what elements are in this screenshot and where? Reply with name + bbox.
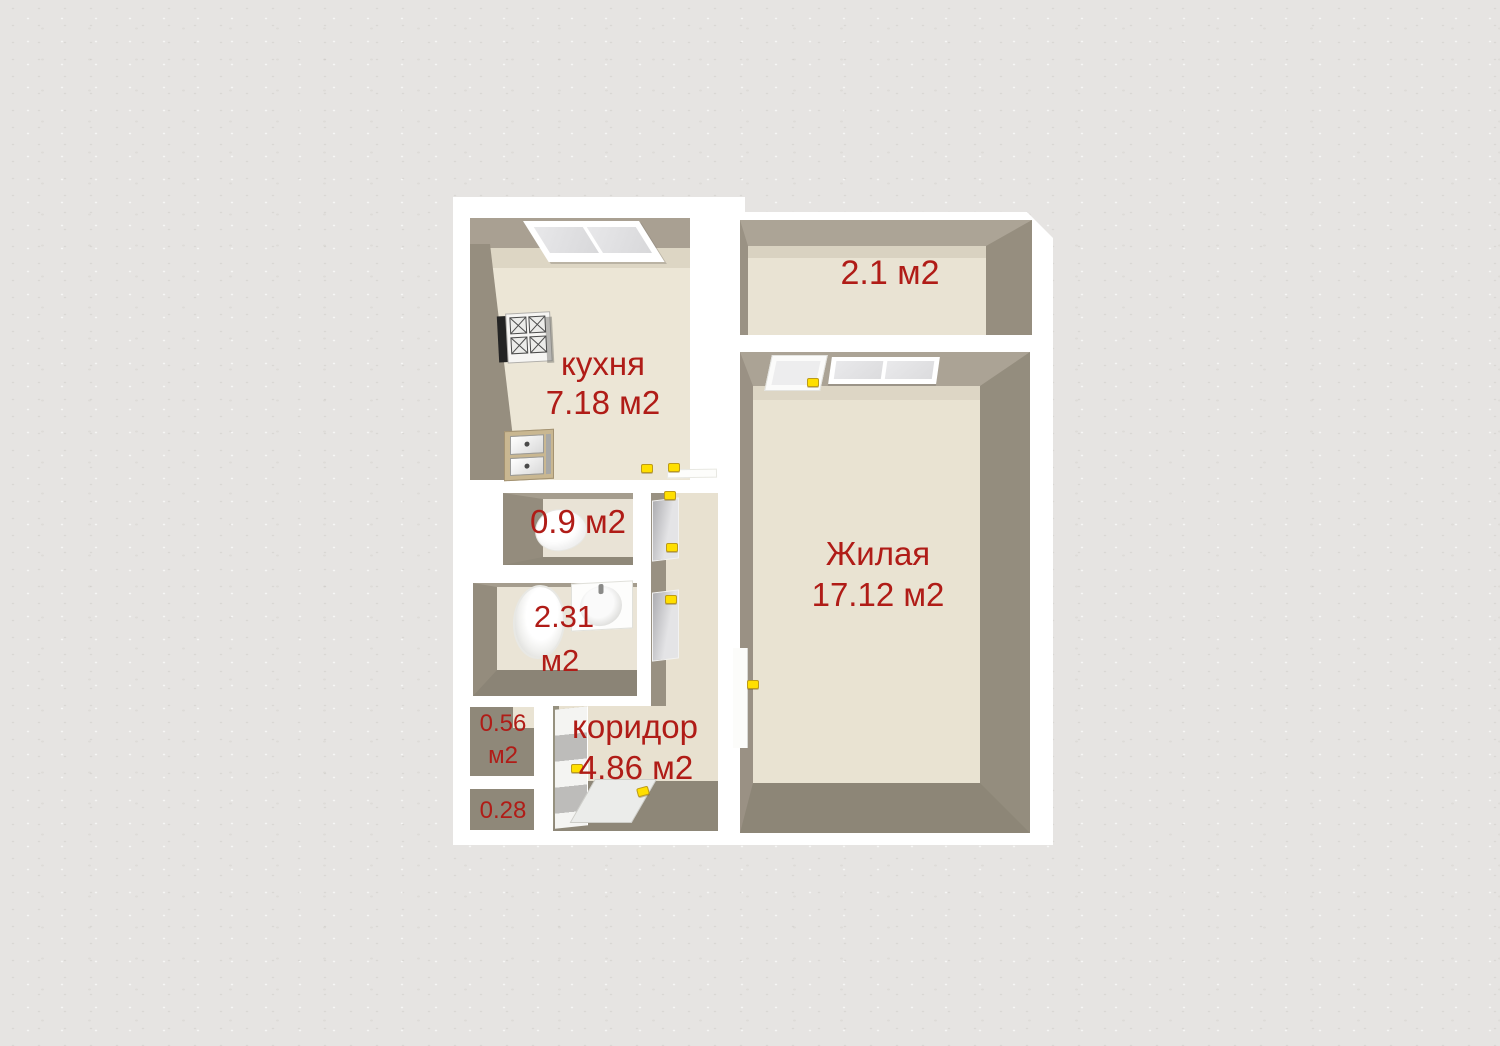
toilet-area-label: 0.9 м2	[497, 505, 659, 540]
kitchen-window-panes	[534, 227, 652, 253]
kitchen-area-label: 7.18 м2	[513, 386, 693, 421]
floor-plan: кухня 7.18 м2 2.1 м2 Жилая 17.12 м2 0.9 …	[0, 0, 1500, 1046]
kitchen-sink-icon	[504, 429, 554, 482]
living-room-window-icon	[828, 357, 940, 384]
living-room-area-label: 17.12 м2	[780, 578, 976, 613]
balcony-area-label: 2.1 м2	[800, 256, 980, 292]
sink-drawer	[510, 434, 544, 454]
bathroom-area-value-label: 2.31	[508, 601, 620, 634]
living-room-door-icon	[733, 648, 748, 748]
living-room-window-panes	[834, 361, 935, 379]
door-handle-icon	[641, 464, 653, 473]
kitchen-name-label: кухня	[523, 347, 683, 382]
corridor-name-label: коридор	[556, 710, 714, 745]
door-handle-icon	[668, 463, 680, 472]
corridor-area-label: 4.86 м2	[556, 751, 716, 786]
kitchen-window-icon	[523, 221, 665, 262]
storage-upper-area-value-label: 0.56	[471, 711, 535, 736]
storage-upper-area-unit-label: м2	[471, 743, 535, 768]
door-handle-icon	[807, 378, 819, 387]
door-handle-icon	[665, 595, 677, 604]
living-room-name-label: Жилая	[793, 537, 963, 572]
door-handle-icon	[747, 680, 759, 689]
bathroom-area-unit-label: м2	[505, 645, 615, 678]
door-handle-icon	[666, 543, 678, 552]
door-handle-icon	[664, 491, 676, 500]
storage-lower-area-label: 0.28	[471, 798, 535, 823]
sink-drawer	[510, 456, 544, 476]
